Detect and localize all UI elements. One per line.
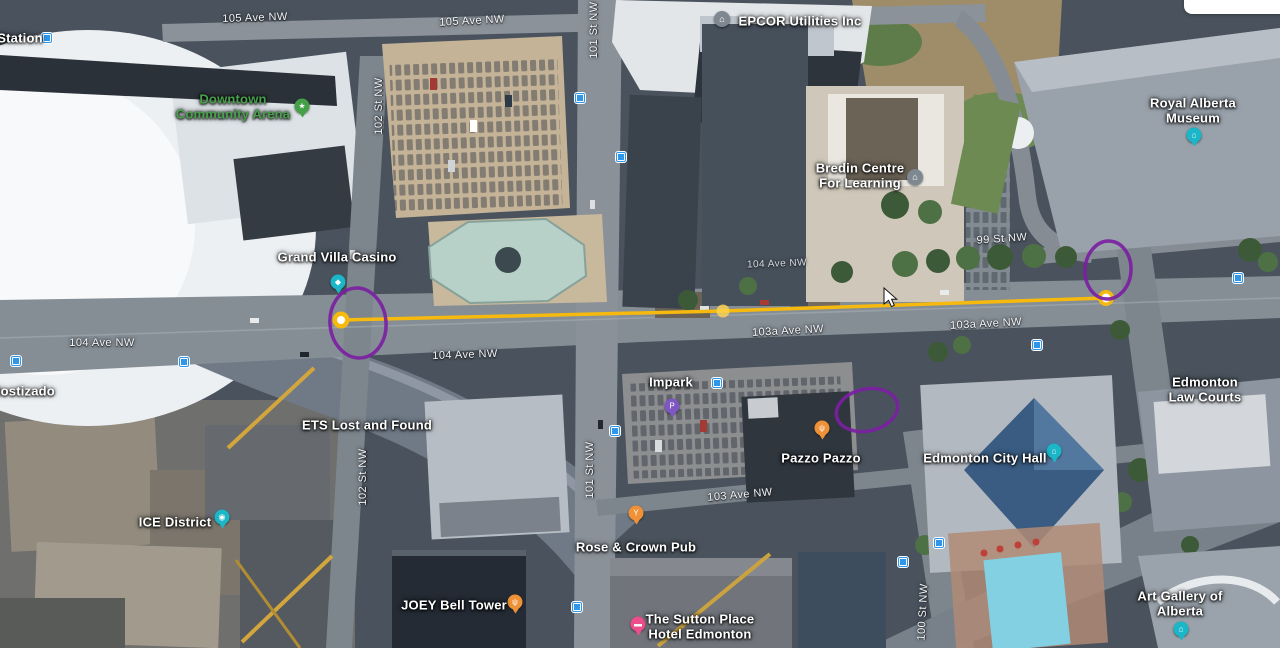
place-label-station[interactable]: Station: [0, 30, 43, 45]
street-label: 102 St NW: [357, 448, 369, 505]
bus-glyph: [611, 427, 619, 435]
bus-glyph: [935, 539, 943, 547]
place-pin-casino-pin[interactable]: ◆: [331, 275, 346, 290]
street-label: 101 St NW: [588, 1, 600, 58]
bus-glyph: [12, 357, 20, 365]
place-label-joey-bell-tower[interactable]: JOEY Bell Tower: [401, 597, 507, 612]
place-label-rose-and-crown-pub[interactable]: Rose & Crown Pub: [576, 539, 696, 554]
place-pin-art-gallery-pin[interactable]: ⌂: [1174, 622, 1189, 637]
place-pin-joey-restaurant-pin[interactable]: ψ: [508, 595, 523, 610]
pin-glyph: Y: [633, 509, 638, 517]
street-label: 102 St NW: [373, 77, 385, 134]
place-label-ice-district[interactable]: ICE District: [139, 514, 211, 529]
place-label-pazzo-pazzo[interactable]: Pazzo Pazzo: [781, 450, 861, 465]
map-canvas[interactable]: 105 Ave NW105 Ave NW101 St NW102 St NW99…: [0, 0, 1280, 648]
pin-glyph: ◆: [335, 278, 341, 286]
bus-glyph: [713, 379, 721, 387]
transit-stop-icon[interactable]: [897, 556, 909, 568]
place-pin-museum-pin[interactable]: ⌂: [1187, 128, 1202, 143]
pin-glyph: ◉: [219, 513, 226, 521]
street-label: 104 Ave NW: [747, 257, 807, 270]
place-label-edmonton-law-courts[interactable]: Edmonton Law Courts: [1168, 375, 1243, 406]
pin-glyph: ψ: [819, 424, 825, 432]
place-label-sutton-place-hotel[interactable]: The Sutton Place Hotel Edmonton: [646, 612, 755, 643]
pin-glyph: ⌂: [1192, 131, 1197, 139]
transit-stop-icon[interactable]: [615, 151, 627, 163]
bus-glyph: [1033, 341, 1041, 349]
transit-stop-icon[interactable]: [10, 355, 22, 367]
bus-glyph: [899, 558, 907, 566]
pin-glyph: ⌂: [1179, 625, 1184, 633]
pin-glyph: ⌂: [1052, 447, 1057, 455]
pin-glyph: ψ: [512, 598, 518, 606]
place-pin-rose-crown-pub-pin[interactable]: Y: [629, 506, 644, 521]
transit-stop-icon[interactable]: [571, 601, 583, 613]
place-pin-pazzo-restaurant-pin[interactable]: ψ: [815, 421, 830, 436]
place-pin-epcor-building-icon[interactable]: ⌂: [714, 11, 730, 27]
bus-glyph: [43, 34, 51, 42]
street-label: 104 Ave NW: [69, 337, 134, 349]
street-label: 101 St NW: [584, 441, 596, 498]
bus-glyph: [573, 603, 581, 611]
transit-stop-icon[interactable]: [711, 377, 723, 389]
bus-glyph: [617, 153, 625, 161]
place-label-downtown-community-arena[interactable]: Downtown Community Arena: [176, 92, 290, 123]
place-pin-impark-parking-pin[interactable]: P: [665, 399, 680, 414]
bus-glyph: [180, 358, 188, 366]
place-label-art-gallery-of-alberta[interactable]: Art Gallery of Alberta: [1130, 589, 1230, 620]
place-pin-city-hall-pin[interactable]: ⌂: [1047, 444, 1062, 459]
transit-stop-icon[interactable]: [609, 425, 621, 437]
transit-stop-icon[interactable]: [1031, 339, 1043, 351]
transit-stop-icon[interactable]: [178, 356, 190, 368]
place-pin-ice-district-camera-pin[interactable]: ◉: [215, 510, 230, 525]
info-box: [1184, 0, 1280, 14]
place-label-epcor-utilities[interactable]: EPCOR Utilities Inc: [739, 13, 862, 28]
place-label-ets-lost-and-found[interactable]: ETS Lost and Found: [302, 417, 432, 432]
pin-glyph: ★: [298, 102, 305, 110]
place-pin-arena-pin[interactable]: ★: [295, 99, 310, 114]
pin-glyph: ⌂: [912, 173, 917, 182]
place-label-grand-villa-casino[interactable]: Grand Villa Casino: [278, 249, 397, 264]
place-label-rostizado[interactable]: Rostizado: [0, 383, 55, 398]
place-label-bredin-centre[interactable]: Bredin Centre For Learning: [816, 161, 905, 192]
transit-stop-icon[interactable]: [933, 537, 945, 549]
pin-glyph: P: [669, 402, 674, 410]
pin-glyph: ⌂: [719, 15, 724, 24]
place-label-edmonton-city-hall[interactable]: Edmonton City Hall: [923, 450, 1047, 465]
transit-stop-icon[interactable]: [574, 92, 586, 104]
pin-glyph: ▬: [634, 620, 642, 628]
place-pin-sutton-hotel-pin[interactable]: ▬: [631, 617, 646, 632]
place-pin-bredin-building-icon[interactable]: ⌂: [907, 169, 923, 185]
bus-glyph: [576, 94, 584, 102]
bus-glyph: [1234, 274, 1242, 282]
place-label-impark[interactable]: Impark: [649, 374, 693, 389]
street-label: 104 Ave NW: [432, 348, 498, 362]
transit-stop-icon[interactable]: [1232, 272, 1244, 284]
transit-stop-icon[interactable]: [41, 32, 53, 44]
place-label-royal-alberta-museum[interactable]: Royal Alberta Museum: [1150, 96, 1237, 127]
street-label: 105 Ave NW: [222, 11, 288, 25]
